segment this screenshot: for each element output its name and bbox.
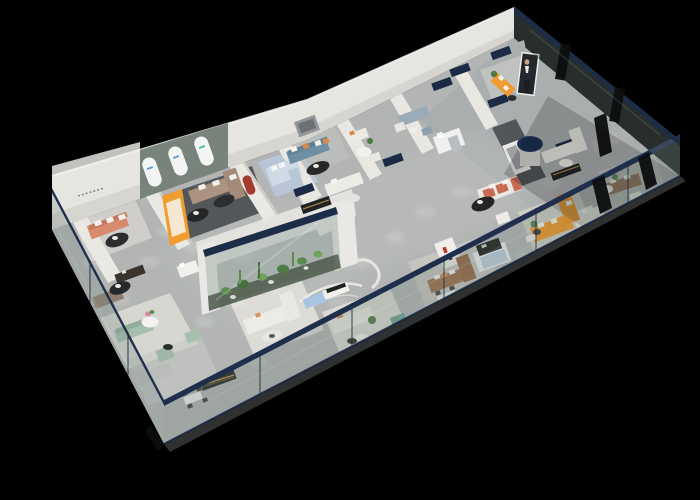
floorplan-scene <box>0 0 700 500</box>
terrarium-plant <box>237 280 249 289</box>
poster-person-legs <box>524 80 530 93</box>
potted-plant <box>491 71 497 77</box>
side-table <box>409 128 417 133</box>
terrarium-pebble <box>304 266 309 270</box>
round-table-white <box>142 317 159 328</box>
flower-bouquet-green <box>150 310 155 314</box>
showroom-floorplan-render <box>0 0 700 500</box>
side-table <box>344 194 360 203</box>
spotlight <box>415 207 435 218</box>
spotlight <box>452 187 472 198</box>
nook-round-table <box>357 147 372 157</box>
poster-person-head <box>525 59 530 65</box>
spotlight <box>195 317 215 328</box>
table-decor <box>193 211 199 215</box>
side-table-dark <box>508 95 517 101</box>
terrarium-plant <box>314 251 323 258</box>
table-decor-dark <box>269 334 275 338</box>
potted-plant <box>367 138 373 144</box>
table-decor <box>313 164 319 168</box>
spotlight <box>385 232 405 243</box>
terrarium-plant <box>277 265 289 274</box>
terrarium-pebble <box>230 295 236 299</box>
table-decor <box>477 200 483 204</box>
terrarium-pebble <box>268 280 274 284</box>
spotlight <box>140 257 160 268</box>
table-decor <box>115 284 121 288</box>
side-table-dark <box>163 344 173 350</box>
table-decor <box>112 236 118 240</box>
terrarium-plant <box>297 257 307 265</box>
